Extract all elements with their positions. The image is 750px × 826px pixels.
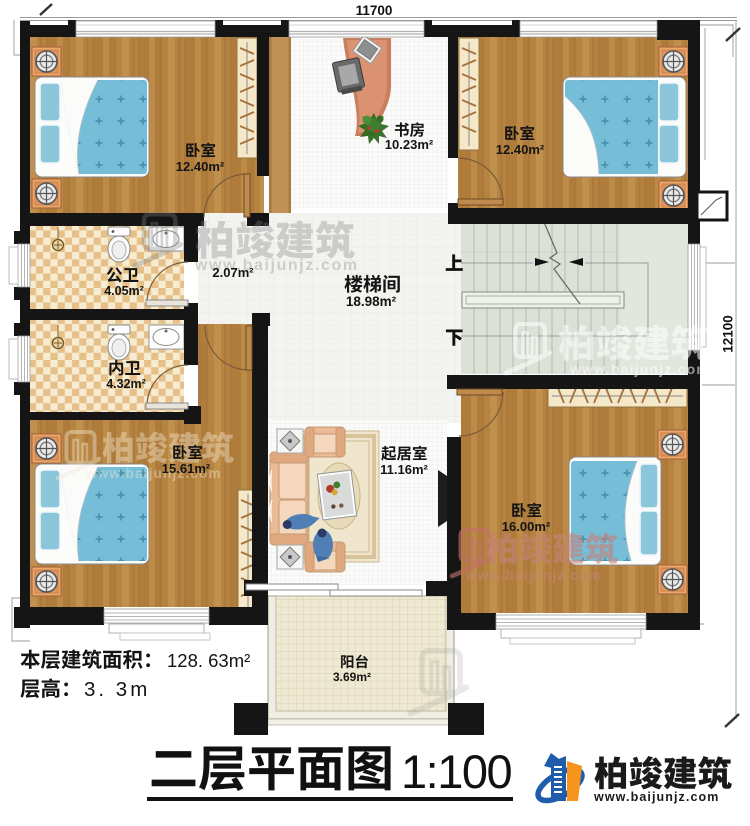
svg-text:4.32m²: 4.32m² [106, 377, 146, 391]
svg-text:12100: 12100 [721, 315, 736, 353]
svg-text:www.baijunjz.com: www.baijunjz.com [593, 790, 719, 804]
svg-text:16.00m²: 16.00m² [502, 519, 551, 534]
svg-text:15.61m²: 15.61m² [162, 461, 211, 476]
svg-text:2.07m²: 2.07m² [212, 265, 254, 280]
svg-text:128. 63m²: 128. 63m² [167, 650, 250, 671]
svg-text:1:100: 1:100 [401, 745, 511, 798]
svg-text:12.40m²: 12.40m² [176, 159, 225, 174]
svg-text:12.40m²: 12.40m² [496, 142, 545, 157]
svg-text:11700: 11700 [356, 3, 393, 18]
svg-text:3. 3m: 3. 3m [84, 678, 150, 701]
svg-text:18.98m²: 18.98m² [346, 294, 397, 309]
svg-text:10.23m²: 10.23m² [385, 137, 434, 152]
svg-text:www.baijunjz.com: www.baijunjz.com [465, 568, 602, 583]
svg-text:3.69m²: 3.69m² [333, 670, 371, 684]
svg-text:www.baijunjz.com: www.baijunjz.com [569, 361, 710, 377]
svg-text:11.16m²: 11.16m² [380, 462, 428, 477]
svg-text:4.05m²: 4.05m² [104, 284, 144, 298]
